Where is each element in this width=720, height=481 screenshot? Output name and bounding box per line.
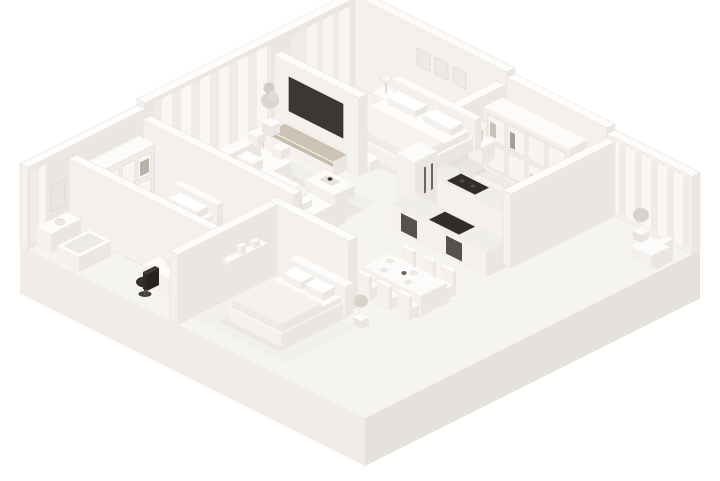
lounge-curtain-pleat-4 [658,164,667,239]
bedroom-curtain-pleat-1 [339,7,349,90]
dining-centerpiece [401,271,406,275]
living-curtain-pleat-3 [219,65,229,150]
lamp-1-shade [381,73,392,82]
screenshot-root [0,0,720,481]
bathroom-sink [55,219,65,225]
lounge-curtain-pleat-2 [626,148,635,223]
shelf-item-2 [237,243,246,256]
floor-plan-svg [0,0,720,481]
living-plant-foliage-3 [268,91,278,101]
fridge-handle-2 [424,167,426,194]
bedroom2-plant-foliage [354,295,368,308]
burner-1 [459,179,464,182]
dining-plate-1 [387,259,394,263]
fridge-handle-1 [431,163,433,190]
living-curtain-pleat-2 [238,56,248,141]
wardrobe-clothes-2 [510,132,515,151]
dining-plate-4 [405,280,412,284]
apartment-3d-floor-plan [0,0,720,481]
lounge-plant-foliage [633,208,649,222]
wardrobe-clothes-1 [490,122,496,139]
dining-plate-3 [381,268,388,272]
dining-plate-2 [411,271,418,275]
coffee-table-item [328,177,333,181]
lounge-curtain-pleat-5 [674,172,683,247]
burner-2 [470,185,475,188]
